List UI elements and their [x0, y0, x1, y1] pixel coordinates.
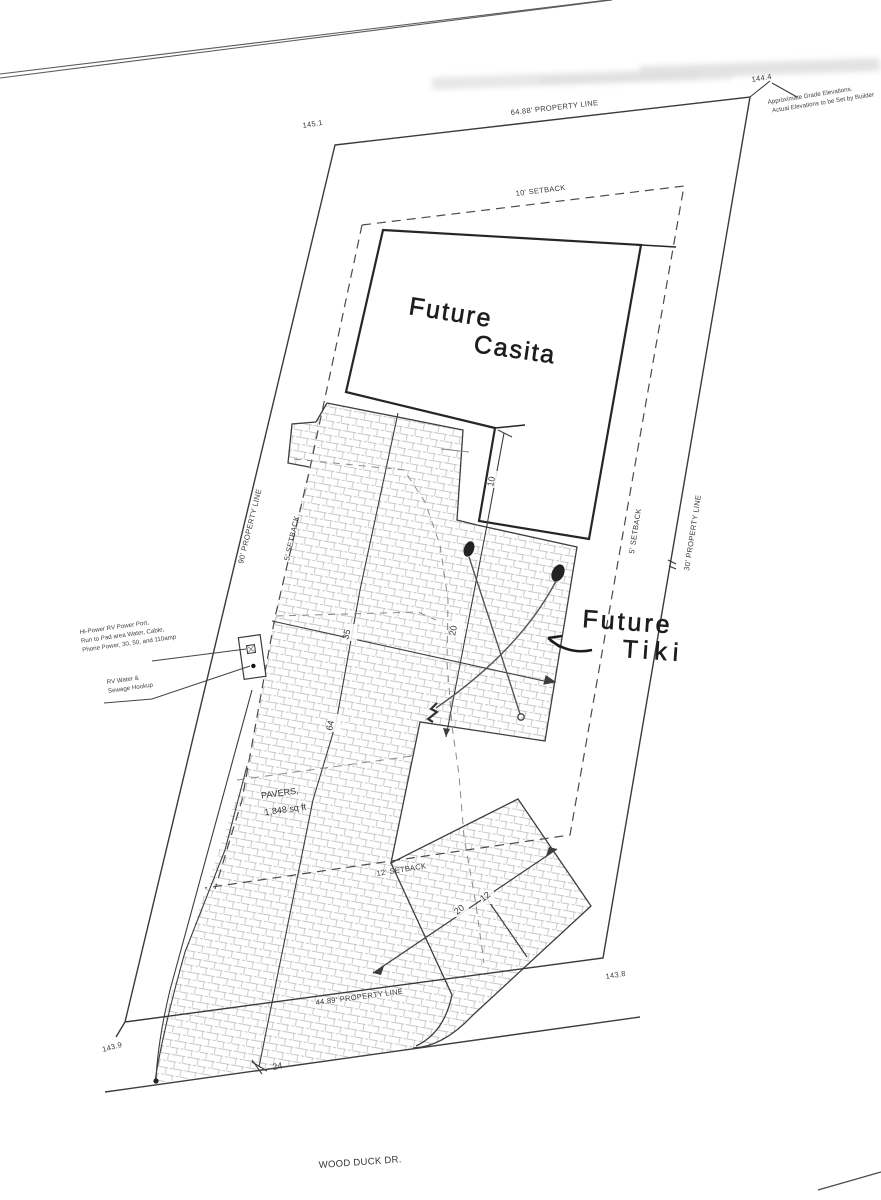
svg-text:20: 20: [447, 625, 459, 637]
svg-text:10: 10: [485, 476, 497, 488]
svg-text:Tiki: Tiki: [622, 635, 686, 667]
svg-text:64: 64: [324, 720, 336, 732]
svg-text:24: 24: [272, 1060, 284, 1072]
